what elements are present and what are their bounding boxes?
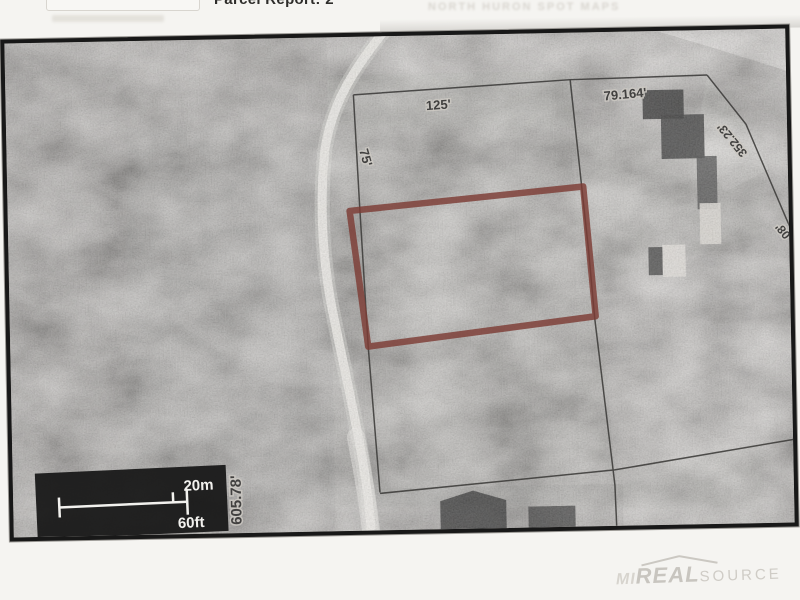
aerial-map: 125' 79.164' 352.23' 75' 605.78' 08' 20m… <box>4 29 794 538</box>
watermark-roof-icon <box>639 554 719 567</box>
header-faint-text: NORTH HURON SPOT MAPS <box>428 1 620 13</box>
header-smudge <box>52 15 164 22</box>
scale-bar: 20m 60ft <box>35 465 229 538</box>
dimension-road-frontage: 605.78' <box>228 475 246 525</box>
parcel-report-page: Parcel Report: 2 NORTH HURON SPOT MAPS <box>0 0 800 600</box>
watermark-mi: MI <box>616 571 636 589</box>
parcel-map-scan: 125' 79.164' 352.23' 75' 605.78' 08' 20m… <box>0 24 798 541</box>
scale-imperial-label: 60ft <box>177 514 204 532</box>
scale-metric-label: 20m <box>183 477 214 495</box>
film-grain <box>4 29 794 538</box>
watermark-source: SOURCE <box>699 566 782 586</box>
mirealsource-watermark: MIREALSOURCE <box>615 558 800 599</box>
header-control-box[interactable] <box>46 0 200 11</box>
page-title: Parcel Report: 2 <box>214 0 334 8</box>
dimension-top: 125' <box>425 96 451 113</box>
